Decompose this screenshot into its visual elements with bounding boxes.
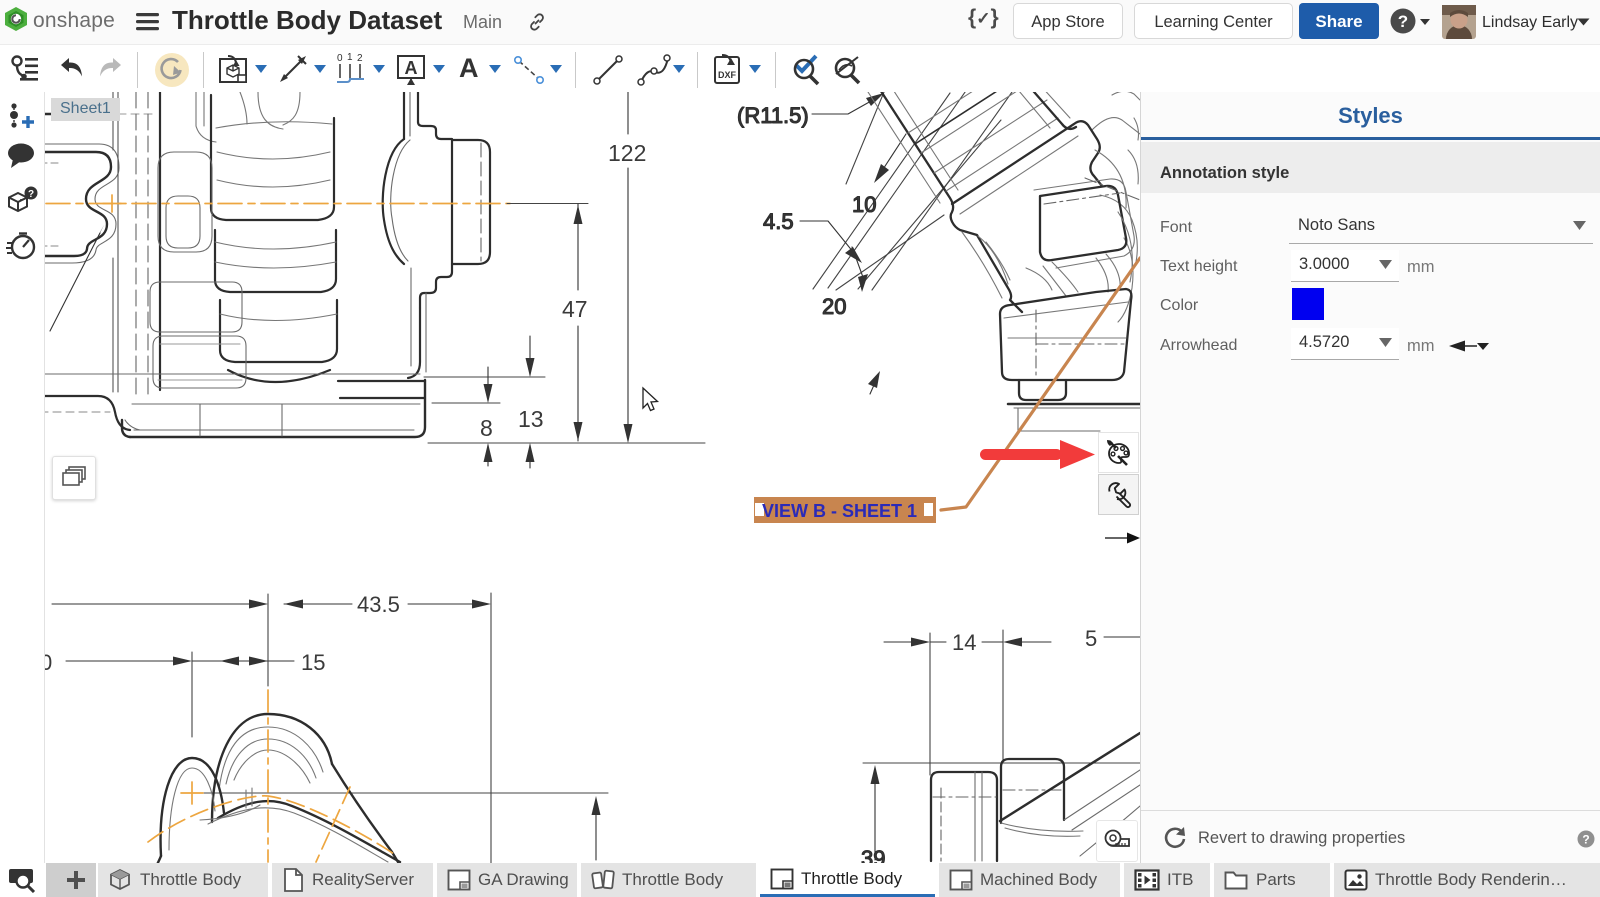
svg-text:15: 15 (301, 650, 325, 675)
svg-text:0: 0 (45, 650, 52, 675)
svg-text:43.5: 43.5 (357, 592, 400, 617)
svg-text:5: 5 (1085, 626, 1097, 651)
svg-text:VIEW B - SHEET 1: VIEW B - SHEET 1 (762, 501, 917, 521)
svg-text:4.5: 4.5 (763, 209, 794, 234)
svg-text:?: ? (28, 189, 34, 200)
svg-text:?: ? (1398, 12, 1408, 31)
svg-text:A: A (405, 58, 418, 78)
svg-text:2: 2 (357, 53, 363, 64)
svg-text:122: 122 (608, 140, 646, 166)
svg-text:39: 39 (861, 846, 885, 863)
svg-text:47: 47 (562, 296, 588, 322)
svg-text:DXF: DXF (718, 70, 737, 80)
svg-text:14: 14 (952, 630, 976, 655)
svg-text:1: 1 (347, 52, 353, 63)
svg-text:?: ? (1582, 833, 1589, 847)
svg-text:10: 10 (852, 192, 876, 217)
svg-text:20: 20 (822, 294, 846, 319)
svg-text:8: 8 (480, 415, 493, 441)
svg-text:0: 0 (337, 53, 343, 64)
svg-text:(R11.5): (R11.5) (737, 103, 809, 128)
svg-text:13: 13 (518, 406, 544, 432)
